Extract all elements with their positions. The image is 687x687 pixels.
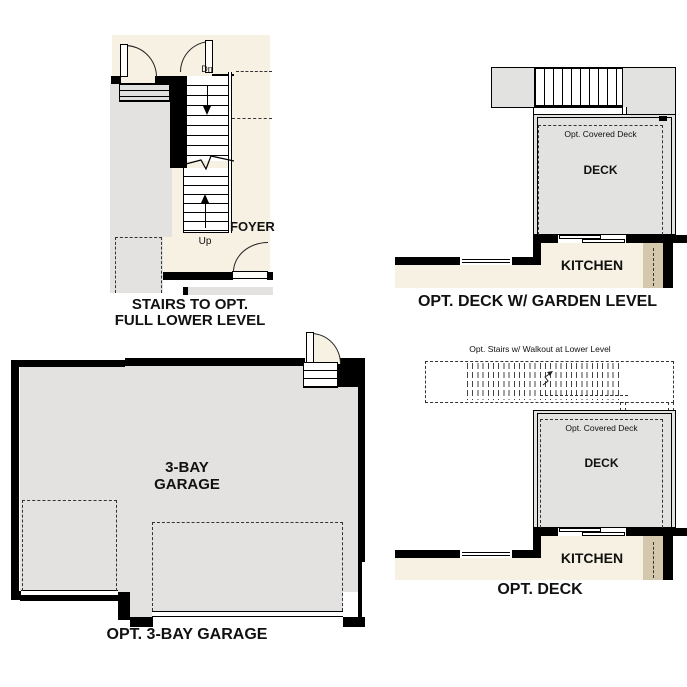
plan-opt-deck: Opt. Stairs w/ Walkout at Lower Level Op… [0,0,687,687]
window [462,552,510,556]
floorplan-page: Dn Up FOYER STAIRS TO OPT. FULL LOWER LE… [0,0,687,687]
opt-stairs-note: Opt. Stairs w/ Walkout at Lower Level [420,344,660,354]
covered-deck-label: Opt. Covered Deck [540,423,663,433]
kitchen-label: KITCHEN [548,551,636,566]
plan-title: OPT. DECK [440,581,640,598]
stair-direction-arrow [538,368,560,388]
kitchen-floor [395,558,541,580]
strip-dashed-line [653,542,654,578]
deck-label: DECK [540,457,663,470]
covered-deck-dashed [540,419,663,528]
wall [663,536,673,580]
opt-stairs-mid-dashed [540,395,628,396]
